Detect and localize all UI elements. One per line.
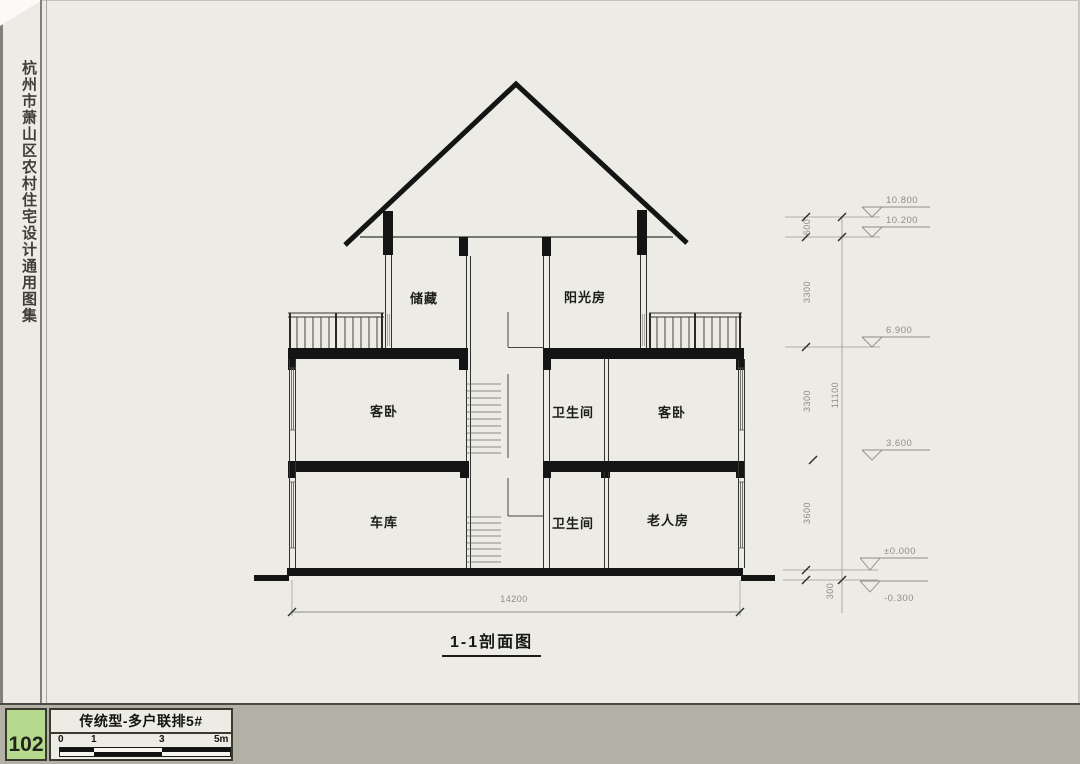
scale-bar-strip	[59, 747, 231, 757]
elevation-label-site: -0.300	[884, 593, 914, 604]
dim-attic-story: 3300	[802, 269, 812, 315]
room-label-elderly-room: 老人房	[623, 510, 713, 529]
footer-band: 102 传统型-多户联排5# 0 1 3 5m	[0, 703, 1080, 764]
section-title: 1-1剖面图	[442, 628, 541, 657]
elevation-label-ground-floor: ±0.000	[884, 546, 916, 557]
room-label-bathroom-2f: 卫生间	[528, 402, 618, 421]
room-label-storage: 储藏	[379, 288, 469, 307]
room-label-sunroom: 阳光房	[540, 287, 630, 306]
elevation-label-ridge: 10.800	[886, 195, 918, 206]
dim-parapet: 600	[802, 204, 812, 250]
scale-tick-0: 0	[58, 734, 64, 745]
dim-overall-height: 11100	[830, 372, 840, 418]
room-label-guest-bedroom-right: 客卧	[627, 402, 717, 421]
room-label-guest-bedroom-left: 客卧	[339, 401, 429, 420]
scale-tick-1: 1	[91, 734, 97, 745]
dim-first-story: 3600	[802, 490, 812, 536]
section-linework	[0, 0, 1080, 705]
room-label-garage: 车库	[339, 512, 429, 531]
room-label-bathroom-1f: 卫生间	[528, 513, 618, 532]
elevation-label-eave: 10.200	[886, 215, 918, 226]
scale-tick-5m: 5m	[214, 734, 228, 745]
scale-bar: 0 1 3 5m	[51, 734, 231, 759]
dim-second-story: 3300	[802, 378, 812, 424]
drawing-title-box: 传统型-多户联排5# 0 1 3 5m	[49, 708, 233, 761]
dim-overall-width: 14200	[491, 594, 537, 604]
elevation-label-attic-floor: 6.900	[886, 325, 912, 336]
dim-plinth: 300	[825, 568, 835, 614]
scale-tick-3: 3	[159, 734, 165, 745]
drawing-sheet: 杭州市萧山区农村住宅设计通用图集	[0, 0, 1080, 764]
page-number-badge: 102	[5, 708, 47, 761]
drawing-title: 传统型-多户联排5#	[51, 710, 231, 734]
elevation-label-second-floor: 3.600	[886, 438, 912, 449]
